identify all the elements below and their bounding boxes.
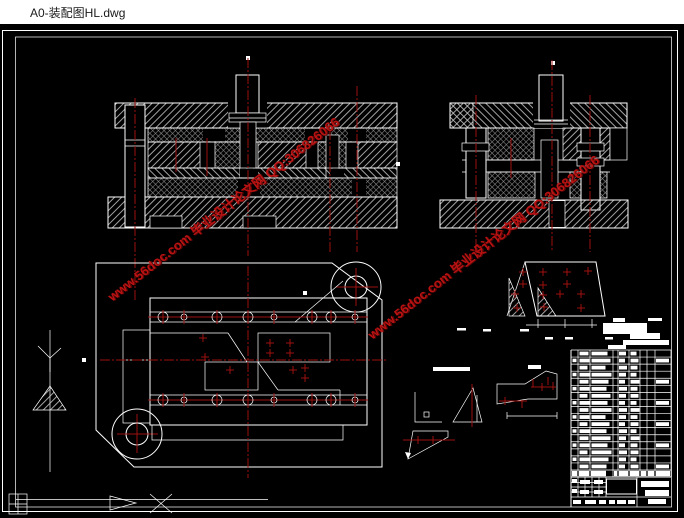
parts-list-row bbox=[573, 458, 637, 462]
parts-list-row bbox=[580, 408, 640, 412]
technical-notes-block bbox=[457, 318, 669, 349]
punch-shank-right bbox=[539, 75, 563, 121]
margin-marks bbox=[9, 330, 268, 514]
parts-list-row bbox=[573, 373, 637, 377]
drawing-name-cell bbox=[607, 479, 637, 494]
detail-views bbox=[403, 365, 557, 459]
parts-list-row bbox=[580, 394, 639, 398]
parts-list-row bbox=[580, 380, 670, 384]
cad-drawing[interactable] bbox=[0, 24, 684, 518]
title-block bbox=[571, 350, 671, 507]
plan-view bbox=[82, 262, 388, 478]
parts-list-row bbox=[573, 401, 670, 405]
strip-punch-marks bbox=[511, 267, 592, 312]
parts-list bbox=[571, 350, 671, 477]
parts-list-row bbox=[580, 352, 637, 356]
window-title: A0-装配图HL.dwg bbox=[0, 4, 125, 21]
parts-list-row bbox=[580, 436, 640, 440]
parts-list-row bbox=[573, 429, 637, 433]
branch-symbol bbox=[38, 346, 61, 372]
parts-list-row bbox=[580, 450, 639, 454]
arrow-mark bbox=[110, 496, 136, 510]
datum-triangle-symbol bbox=[33, 386, 66, 410]
corner-detail bbox=[415, 392, 442, 422]
cad-canvas[interactable]: www.56doc.com 毕业设计论文网 QQ:306826066 www.5… bbox=[0, 24, 684, 518]
parts-list-row bbox=[580, 422, 670, 426]
section-view-right bbox=[440, 60, 628, 252]
parts-list-row bbox=[580, 465, 670, 469]
punch-position-marks bbox=[199, 334, 309, 382]
x-mark bbox=[150, 494, 172, 513]
parts-list-row bbox=[573, 415, 638, 419]
parts-list-row bbox=[573, 387, 638, 391]
parts-list-row bbox=[573, 443, 670, 447]
window-titlebar: A0-装配图HL.dwg bbox=[0, 0, 684, 24]
triangle-detail bbox=[408, 431, 448, 459]
wedge-detail bbox=[453, 388, 482, 422]
parts-list-row bbox=[573, 359, 670, 363]
strip-layout bbox=[507, 262, 605, 328]
